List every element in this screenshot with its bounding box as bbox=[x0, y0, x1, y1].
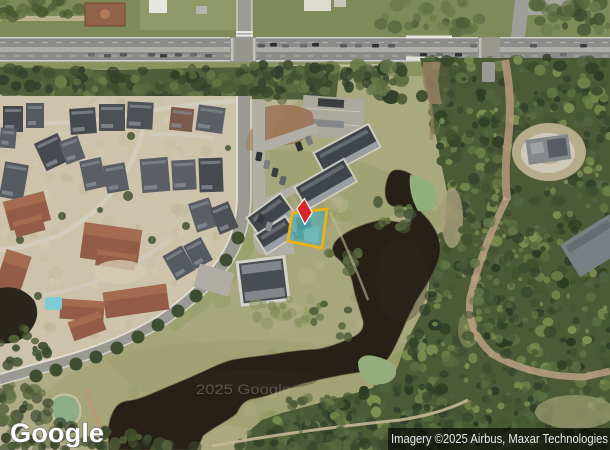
svg-text:Imagery ©2025 Airbus, Maxar Te: Imagery ©2025 Airbus, Maxar Technologies bbox=[391, 432, 608, 446]
svg-text:Google: Google bbox=[10, 418, 104, 448]
svg-text:2025 Google: 2025 Google bbox=[196, 382, 291, 397]
